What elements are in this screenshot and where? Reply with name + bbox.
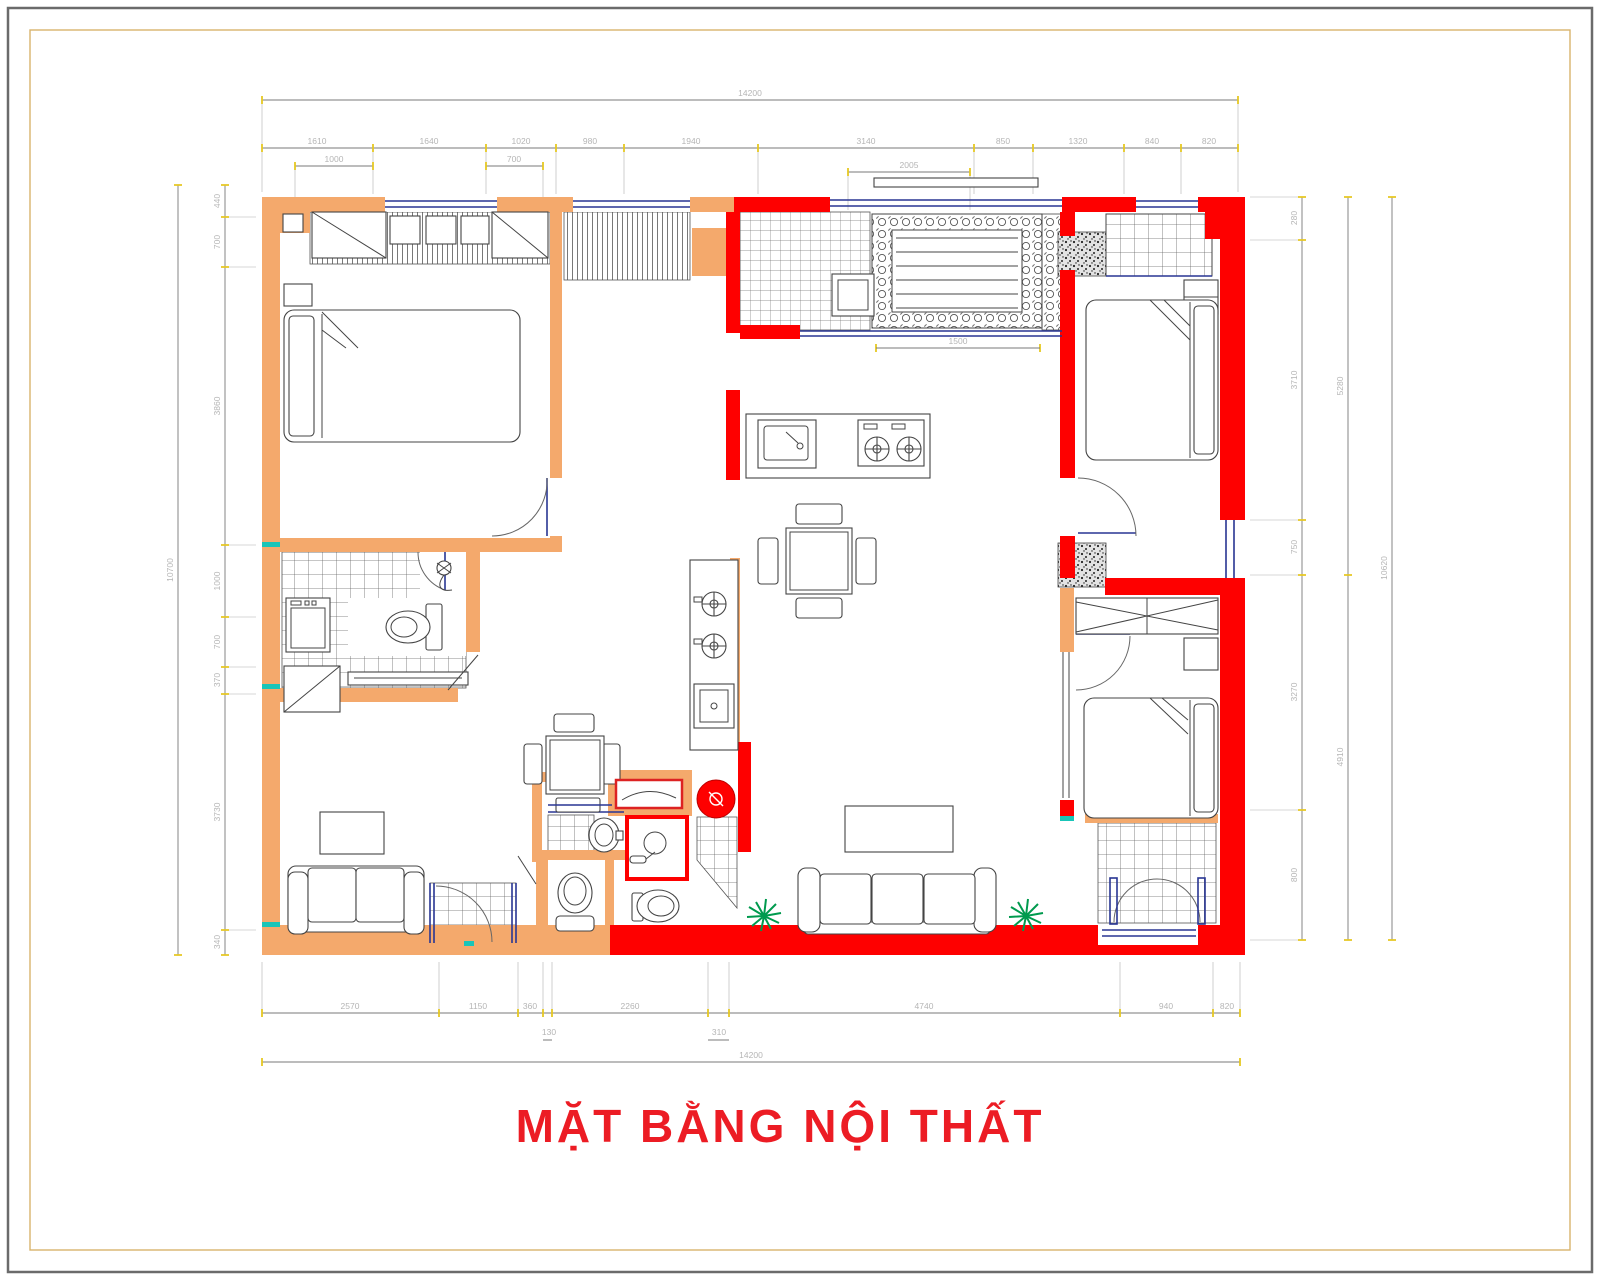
dim-bottom-7: 820 bbox=[1220, 1001, 1234, 1011]
dimensions-bottom: 2570 1150 360 2260 4740 940 820 130 310 … bbox=[262, 962, 1240, 1066]
bed1-headboard bbox=[289, 316, 314, 436]
hall-closet-hatch bbox=[564, 212, 690, 280]
table-small bbox=[546, 736, 604, 794]
dim-left-total: 10700 bbox=[165, 558, 175, 582]
toilet2-tank bbox=[556, 916, 594, 931]
dim-bottom-3: 360 bbox=[523, 1001, 537, 1011]
sofa2-cushion-1 bbox=[308, 868, 356, 922]
balcony-ledge bbox=[874, 178, 1038, 187]
bed2-headboard bbox=[1194, 306, 1214, 454]
dim-top-1: 1610 bbox=[308, 136, 327, 146]
dim-top-total: 14200 bbox=[738, 88, 762, 98]
dimensions-top: 14200 1610 1640 1020 980 1940 3140 850 1… bbox=[262, 88, 1238, 210]
floor-plan-drawing: 14200 1610 1640 1020 980 1940 3140 850 1… bbox=[0, 0, 1600, 1280]
dim-right-3: 750 bbox=[1289, 540, 1299, 554]
kitchen-counter bbox=[690, 560, 738, 750]
dim-left-8: 340 bbox=[212, 935, 222, 949]
dim-balcony-width: 1500 bbox=[949, 336, 968, 346]
floor-plan-sheet: 14200 1610 1640 1020 980 1940 3140 850 1… bbox=[0, 0, 1600, 1280]
chair-right bbox=[602, 744, 620, 784]
dim-right-mid-1: 5280 bbox=[1335, 376, 1345, 395]
vanity-counter bbox=[616, 780, 682, 808]
dim-bottom-sub-1: 130 bbox=[542, 1027, 556, 1037]
dim-right-5: 800 bbox=[1289, 868, 1299, 882]
double-bed-1 bbox=[284, 310, 520, 442]
dim-top-4: 980 bbox=[583, 136, 597, 146]
dim-right-2: 3710 bbox=[1289, 370, 1299, 389]
island-burner-2 bbox=[897, 437, 921, 461]
tv-cabinet bbox=[320, 812, 384, 854]
dim-bottom-5: 4740 bbox=[915, 1001, 934, 1011]
dim-top-2: 1640 bbox=[420, 136, 439, 146]
oval-sink bbox=[589, 818, 619, 852]
chair-north bbox=[796, 504, 842, 524]
nightstand-3 bbox=[1184, 638, 1218, 670]
dim-bottom-6: 940 bbox=[1159, 1001, 1173, 1011]
island-burner-1 bbox=[865, 437, 889, 461]
shelf-box-2 bbox=[426, 216, 456, 244]
dim-bottom-4: 2260 bbox=[621, 1001, 640, 1011]
gas-burner-1 bbox=[702, 592, 726, 616]
dim-bottom-1: 2570 bbox=[341, 1001, 360, 1011]
dim-left-1: 440 bbox=[212, 194, 222, 208]
sofa2-cushion-2 bbox=[356, 868, 404, 922]
dimensions-left: 10700 440 700 3860 1000 700 370 3730 340 bbox=[165, 185, 256, 955]
dim-left-5: 700 bbox=[212, 635, 222, 649]
dim-top-sub-3: 2005 bbox=[900, 160, 919, 170]
dim-bottom-sub-2: 310 bbox=[712, 1027, 726, 1037]
dim-right-total: 10620 bbox=[1379, 556, 1389, 580]
dim-left-7: 3730 bbox=[212, 802, 222, 821]
toilet-1 bbox=[386, 611, 430, 643]
washing-machine bbox=[286, 598, 330, 652]
chair-top bbox=[554, 714, 594, 732]
concrete-column-top bbox=[1058, 232, 1106, 276]
dim-left-3: 3860 bbox=[212, 396, 222, 415]
sofa3-cushion-3 bbox=[924, 874, 975, 924]
page-title: MẶT BẰNG NỘI THẤT bbox=[516, 1100, 1045, 1152]
chair-left bbox=[524, 744, 542, 784]
sofa3-armrest-right bbox=[974, 868, 996, 932]
chair-west bbox=[758, 538, 778, 584]
kitchen-island bbox=[746, 414, 930, 478]
dim-top-8: 1320 bbox=[1069, 136, 1088, 146]
dim-top-sub-2: 700 bbox=[507, 154, 521, 164]
dimensions-right: 280 3710 750 3270 800 5280 4910 10620 bbox=[1250, 197, 1396, 940]
toilet-3 bbox=[637, 890, 679, 922]
sofa3-armrest-left bbox=[798, 868, 820, 932]
head-shelf bbox=[284, 284, 312, 306]
corner-cabinet bbox=[283, 214, 303, 232]
chair-south bbox=[796, 598, 842, 618]
dim-top-3: 1020 bbox=[512, 136, 531, 146]
bedroom-2 bbox=[1086, 276, 1218, 460]
shower-stall bbox=[627, 817, 687, 879]
sofa3-cushion-2 bbox=[872, 874, 923, 924]
table-main bbox=[786, 528, 852, 594]
dim-top-sub-1: 1000 bbox=[325, 154, 344, 164]
dim-bottom-total: 14200 bbox=[739, 1050, 763, 1060]
sofa3-cushion-1 bbox=[820, 874, 871, 924]
toilet-2 bbox=[558, 873, 592, 913]
dim-right-mid-2: 4910 bbox=[1335, 747, 1345, 766]
shelf-box-3 bbox=[461, 216, 489, 244]
dim-top-9: 840 bbox=[1145, 136, 1159, 146]
gas-burner-2 bbox=[702, 634, 726, 658]
bed3-headboard bbox=[1194, 704, 1214, 812]
dim-top-5: 1940 bbox=[682, 136, 701, 146]
sofa2-armrest-left bbox=[288, 872, 308, 934]
sofa2-armrest-right bbox=[404, 872, 424, 934]
dim-top-6: 3140 bbox=[857, 136, 876, 146]
island-stove bbox=[858, 420, 924, 466]
dim-right-4: 3270 bbox=[1289, 682, 1299, 701]
dim-top-10: 820 bbox=[1202, 136, 1216, 146]
coffee-table bbox=[845, 806, 953, 852]
dim-bottom-2: 1150 bbox=[469, 1001, 488, 1011]
dim-left-6: 370 bbox=[212, 673, 222, 687]
bedroom-3 bbox=[1076, 598, 1218, 818]
drying-rack bbox=[892, 230, 1022, 312]
dim-right-1: 280 bbox=[1289, 211, 1299, 225]
shelf-box-1 bbox=[390, 216, 420, 244]
dim-left-2: 700 bbox=[212, 235, 222, 249]
dim-top-7: 850 bbox=[996, 136, 1010, 146]
chair-east bbox=[856, 538, 876, 584]
bedroom2-closet-tiles bbox=[1106, 214, 1212, 276]
dim-left-4: 1000 bbox=[212, 571, 222, 590]
